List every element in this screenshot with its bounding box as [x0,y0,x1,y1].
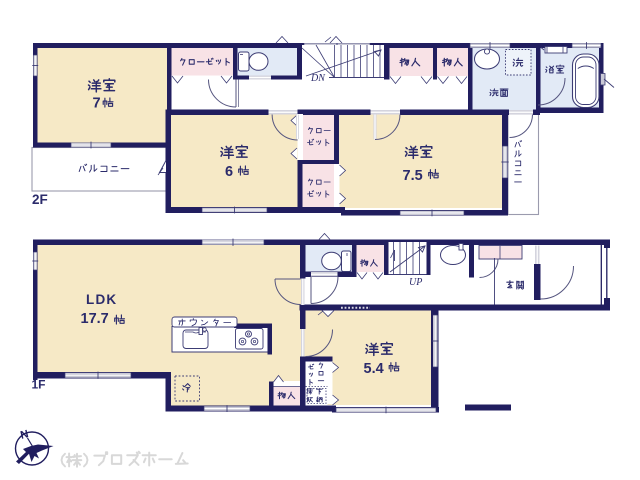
svg-text:5.4: 5.4 [364,361,384,377]
svg-text:1F: 1F [32,378,46,392]
svg-text:7.5: 7.5 [403,168,423,184]
svg-text:DN: DN [310,73,326,84]
svg-text:7: 7 [93,96,101,112]
svg-text:6: 6 [225,164,233,180]
svg-text:2F: 2F [32,192,48,207]
svg-text:17.7: 17.7 [81,311,109,327]
svg-text:UP: UP [409,277,422,288]
svg-text:LDK: LDK [86,292,117,307]
